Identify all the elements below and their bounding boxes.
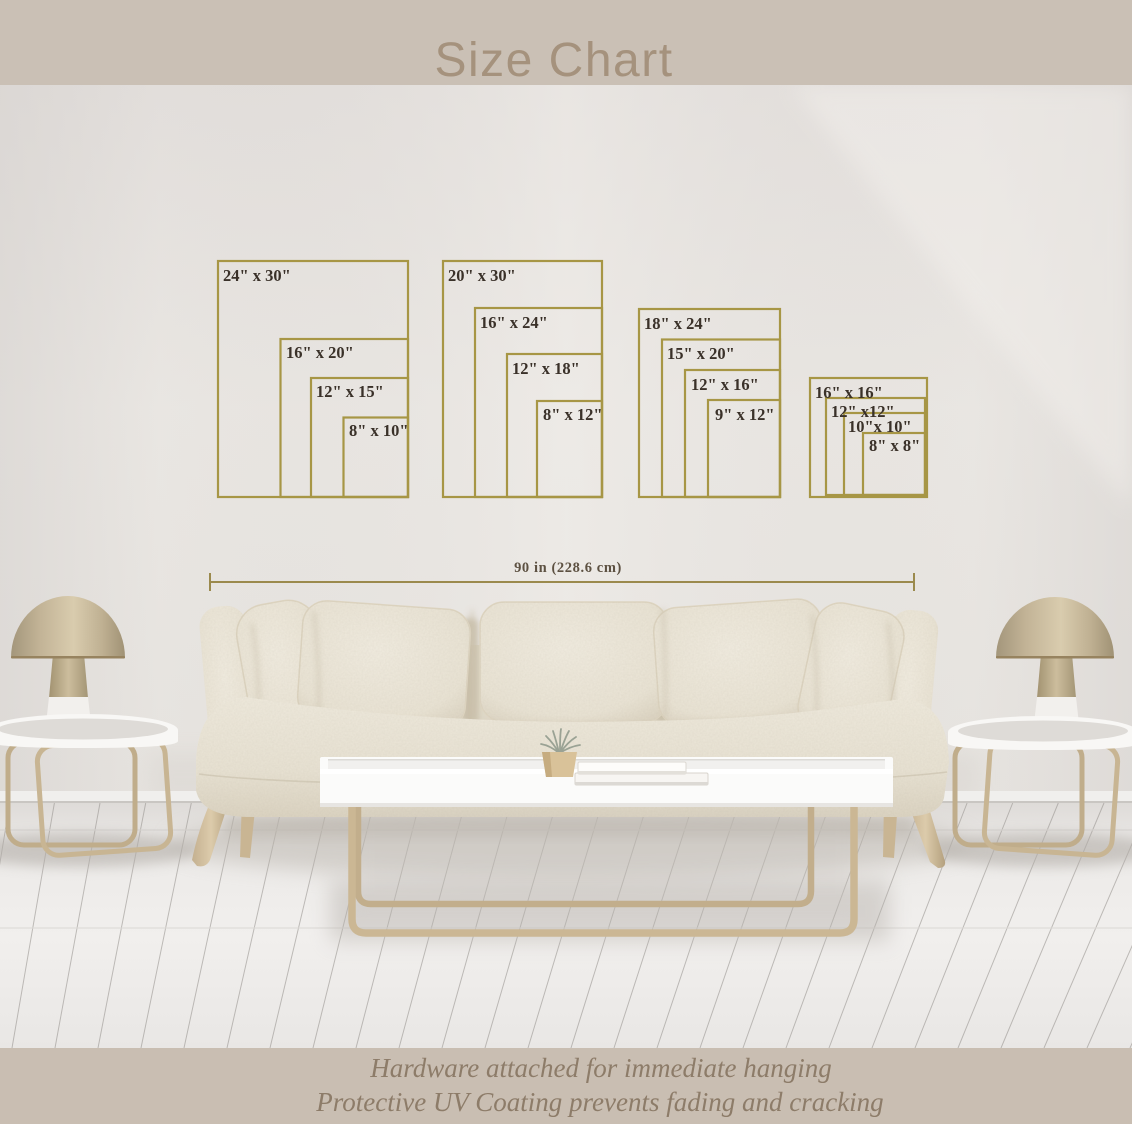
svg-text:Hardware attached for immediat: Hardware attached for immediate hanging (369, 1053, 831, 1083)
svg-text:12" x 18": 12" x 18" (512, 359, 580, 378)
svg-text:16" x 24": 16" x 24" (480, 313, 548, 332)
svg-text:90 in (228.6 cm): 90 in (228.6 cm) (514, 560, 622, 576)
svg-text:10"x 10": 10"x 10" (848, 417, 912, 436)
svg-text:8" x 8": 8" x 8" (869, 436, 920, 455)
svg-text:9" x 12": 9" x 12" (715, 405, 775, 424)
svg-text:16" x 20": 16" x 20" (286, 343, 354, 362)
svg-text:20" x 30": 20" x 30" (448, 266, 516, 285)
svg-text:16" x 16": 16" x 16" (815, 383, 883, 402)
svg-text:12" x 16": 12" x 16" (691, 375, 759, 394)
svg-text:Protective UV Coating prevents: Protective UV Coating prevents fading an… (315, 1087, 883, 1117)
svg-text:Size Chart: Size Chart (434, 34, 673, 87)
svg-text:24" x 30": 24" x 30" (223, 266, 291, 285)
svg-text:8" x 10": 8" x 10" (349, 421, 409, 440)
svg-text:8" x 12": 8" x 12" (543, 405, 603, 424)
svg-text:12" x 15": 12" x 15" (316, 382, 384, 401)
svg-text:18" x 24": 18" x 24" (644, 314, 712, 333)
svg-text:15" x 20": 15" x 20" (667, 344, 735, 363)
